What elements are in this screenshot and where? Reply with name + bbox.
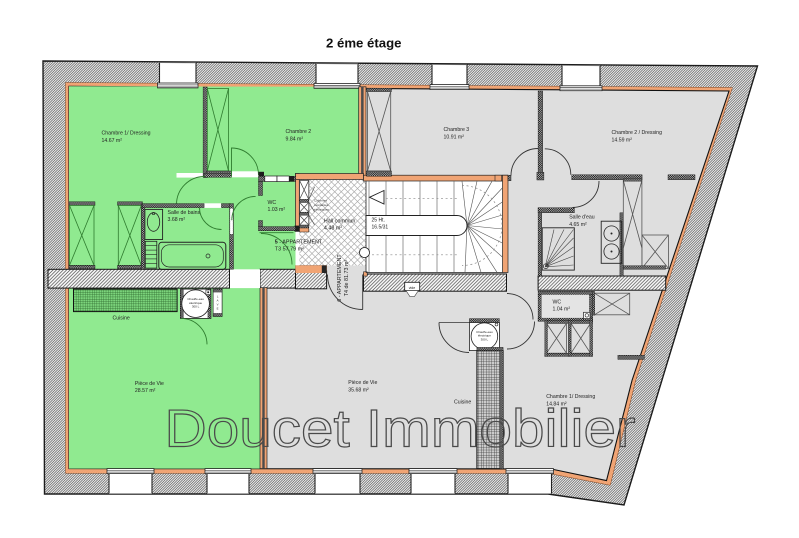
svg-text:Hall commun: Hall commun	[324, 219, 355, 225]
svg-text:WC: WC	[268, 200, 277, 206]
svg-text:Chambre 3: Chambre 3	[444, 127, 470, 133]
svg-text:Cuisine: Cuisine	[113, 315, 130, 321]
svg-text:28.57 m²: 28.57 m²	[135, 388, 156, 394]
svg-text:montantes: montantes	[314, 203, 329, 207]
svg-text:vide: vide	[409, 286, 416, 290]
svg-text:14.67 m²: 14.67 m²	[102, 138, 123, 144]
svg-text:Salle d'eau: Salle d'eau	[569, 215, 595, 221]
svg-text:Salle de bains: Salle de bains	[168, 210, 201, 216]
svg-text:WC: WC	[553, 299, 562, 305]
svg-text:Chambre 1/ Dressing: Chambre 1/ Dressing	[102, 131, 151, 137]
svg-text:9.84 m²: 9.84 m²	[286, 136, 304, 142]
svg-text:14.59 m²: 14.59 m²	[612, 137, 633, 143]
svg-text:2 éme étage: 2 éme étage	[326, 36, 402, 51]
svg-text:35.68 m²: 35.68 m²	[348, 387, 369, 393]
svg-text:1.03 m²: 1.03 m²	[268, 207, 286, 213]
svg-text:25 Ht.: 25 Ht.	[372, 217, 385, 223]
svg-text:E: E	[217, 306, 219, 310]
svg-text:4.48 m²: 4.48 m²	[324, 226, 342, 232]
svg-text:10.91 m²: 10.91 m²	[444, 134, 465, 140]
svg-text:16.5/31: 16.5/31	[372, 224, 389, 230]
svg-text:300 L: 300 L	[481, 337, 489, 341]
svg-text:Doucet Immobilier: Doucet Immobilier	[165, 400, 636, 459]
svg-text:5 - APPARTEMENT: 5 - APPARTEMENT	[275, 239, 323, 245]
svg-text:Pièce de Vie: Pièce de Vie	[135, 381, 164, 387]
svg-text:300 L: 300 L	[192, 305, 200, 309]
svg-text:électriques: électriques	[314, 208, 329, 212]
svg-text:Pièce de Vie: Pièce de Vie	[348, 380, 377, 386]
svg-text:6 - APPARTEMENT: 6 - APPARTEMENT	[337, 254, 343, 302]
svg-text:1.04 m²: 1.04 m²	[553, 307, 571, 313]
svg-text:Chambre 2: Chambre 2	[286, 129, 312, 135]
svg-text:Chambre 2 / Dressing: Chambre 2 / Dressing	[612, 130, 663, 136]
svg-text:T3 57.79 m²: T3 57.79 m²	[275, 247, 304, 253]
svg-text:4.65 m²: 4.65 m²	[569, 222, 587, 228]
svg-text:Colonnes: Colonnes	[314, 199, 328, 203]
svg-text:3.68 m²: 3.68 m²	[168, 217, 186, 223]
svg-text:T4 de 81.73 m²: T4 de 81.73 m²	[344, 260, 350, 297]
